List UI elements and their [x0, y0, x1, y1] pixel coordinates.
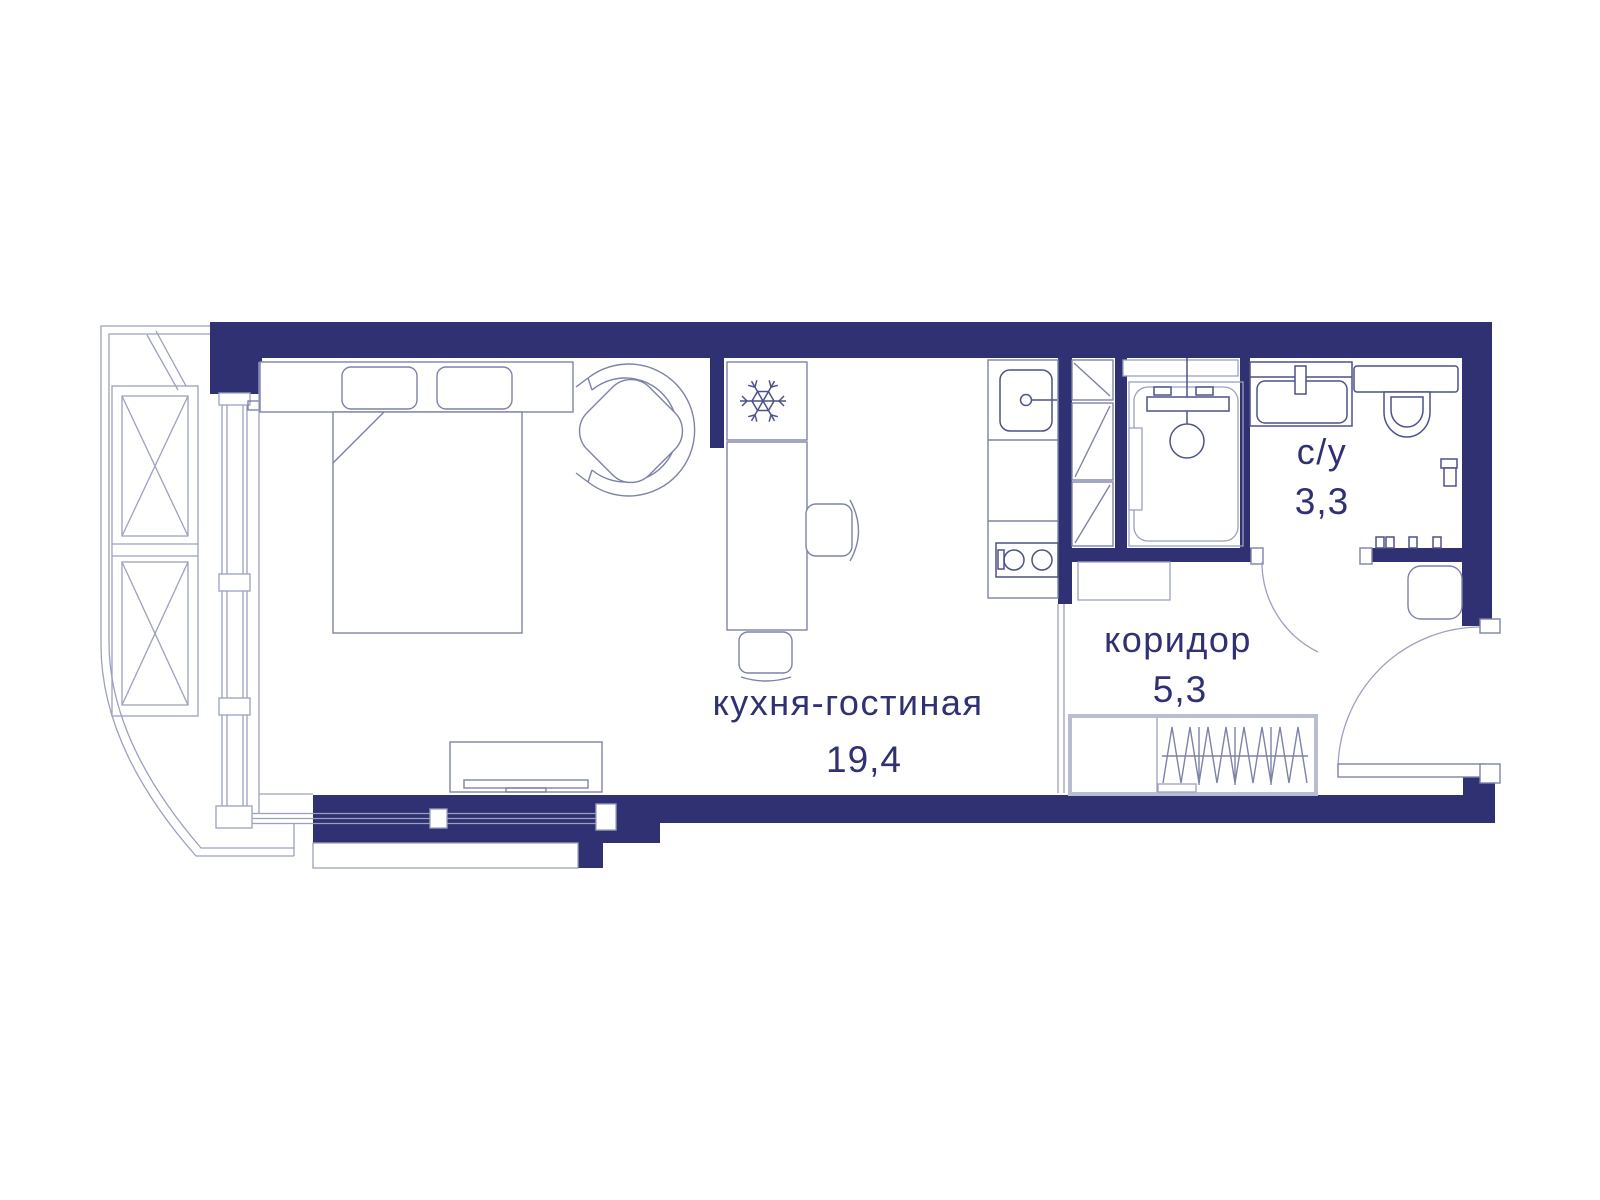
shaft-box-bottom — [122, 562, 188, 705]
wall-kitchen-stub — [710, 358, 724, 448]
door-jamb — [1251, 548, 1263, 564]
room-area-kitchen-living: 19,4 — [826, 739, 902, 781]
room-label-bathroom: с/у — [1297, 431, 1348, 473]
wall-cabinet-shower — [1115, 358, 1127, 550]
shower-glass — [1129, 428, 1142, 510]
balcony-slab-strip — [313, 843, 578, 868]
shower-niche — [1123, 360, 1238, 376]
window-corner-mullion — [216, 806, 252, 828]
wall-right — [1462, 350, 1492, 626]
stove — [996, 543, 1058, 577]
stool — [739, 632, 792, 681]
shower-head-icon — [1170, 424, 1204, 458]
kitchen-counter — [988, 360, 1058, 598]
floor-plan-drawing — [0, 0, 1600, 1200]
fridge — [727, 362, 807, 440]
wall-bathroom-bottom — [1362, 548, 1462, 562]
armchair — [569, 364, 695, 496]
door-swing-arc — [1262, 562, 1318, 652]
room-area-corridor: 5,3 — [1153, 669, 1207, 711]
shower-room — [1123, 358, 1243, 546]
entry-door — [1338, 619, 1500, 783]
room-label-kitchen-living: кухня-гостиная — [713, 682, 984, 724]
kitchen-island — [727, 442, 859, 681]
wall-top-left-column — [210, 322, 262, 394]
bar-chair — [806, 500, 859, 561]
cabinet-column — [1072, 360, 1113, 546]
bed — [260, 362, 573, 633]
door-swing-arc — [1338, 627, 1483, 770]
room-area-bathroom: 3,3 — [1295, 481, 1349, 523]
door-leaf — [1338, 764, 1483, 777]
wall-top — [210, 322, 1492, 358]
shower-bar — [1147, 397, 1229, 411]
toilet — [1354, 366, 1458, 437]
toilet-paper-holder — [1441, 459, 1457, 486]
bed-mattress — [333, 412, 522, 633]
door-jamb — [1480, 619, 1500, 633]
window-mullion — [219, 698, 250, 715]
towel-hooks — [1376, 537, 1441, 548]
wall-bottom-right — [660, 795, 1463, 823]
sink-tap-icon — [1295, 366, 1306, 394]
corridor-cabinet — [1078, 562, 1170, 600]
room-label-corridor: коридор — [1104, 619, 1252, 661]
tv-screen — [464, 780, 588, 788]
wall-shower-right — [1240, 358, 1250, 550]
pillow — [437, 367, 512, 409]
wall-corridor-top — [1072, 548, 1254, 562]
wardrobe — [1070, 716, 1316, 794]
window-mullion — [219, 574, 250, 591]
bathroom-door — [1251, 548, 1372, 652]
window-mullion — [219, 393, 250, 405]
window-mullion — [430, 809, 447, 828]
bathroom-sink — [1250, 362, 1352, 426]
door-hinge — [1480, 764, 1500, 783]
wall-counter-corridor — [1058, 358, 1072, 604]
entry-bench — [1408, 566, 1462, 619]
tv-stand — [450, 742, 602, 792]
shaft-box-top — [112, 386, 198, 716]
kitchen-sink — [1000, 370, 1057, 431]
floor-plan-canvas: кухня-гостиная 19,4 коридор 5,3 с/у 3,3 — [0, 0, 1600, 1200]
wall-step-block — [578, 843, 603, 868]
window-end-mullion — [596, 804, 616, 830]
corridor-edge — [1058, 604, 1064, 793]
door-jamb — [1360, 548, 1372, 564]
pillow — [342, 367, 417, 409]
